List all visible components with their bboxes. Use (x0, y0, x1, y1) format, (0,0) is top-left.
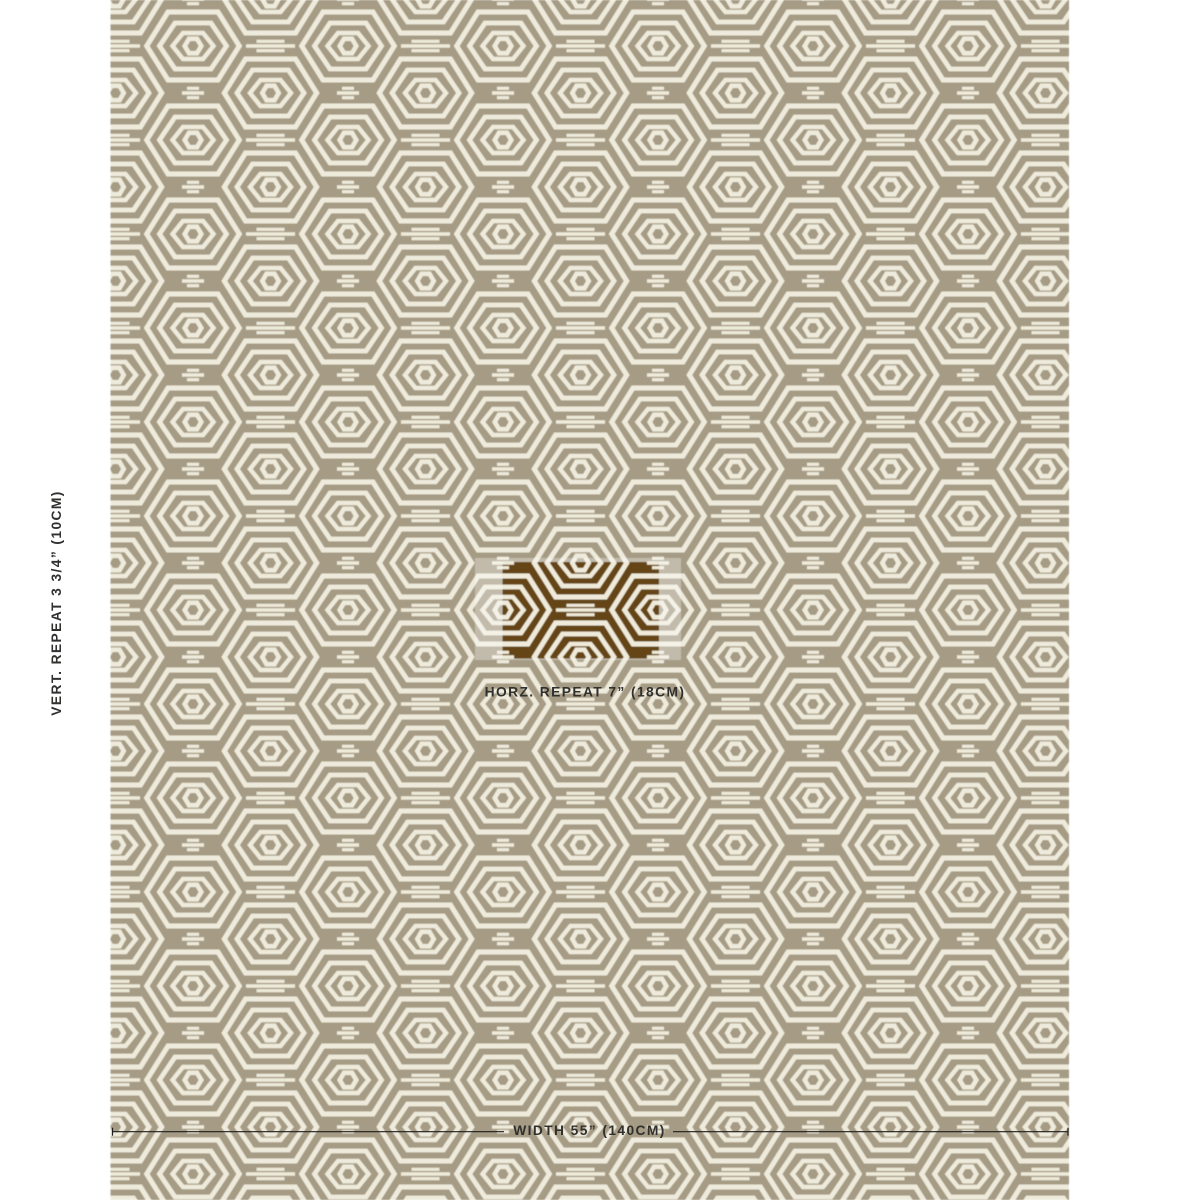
svg-text:WIDTH 55” (140CM): WIDTH 55” (140CM) (513, 1123, 666, 1138)
svg-text:VERT. REPEAT 3 3/4” (10CM): VERT. REPEAT 3 3/4” (10CM) (49, 490, 64, 716)
svg-text:HORZ. REPEAT 7” (18CM): HORZ. REPEAT 7” (18CM) (485, 685, 686, 700)
